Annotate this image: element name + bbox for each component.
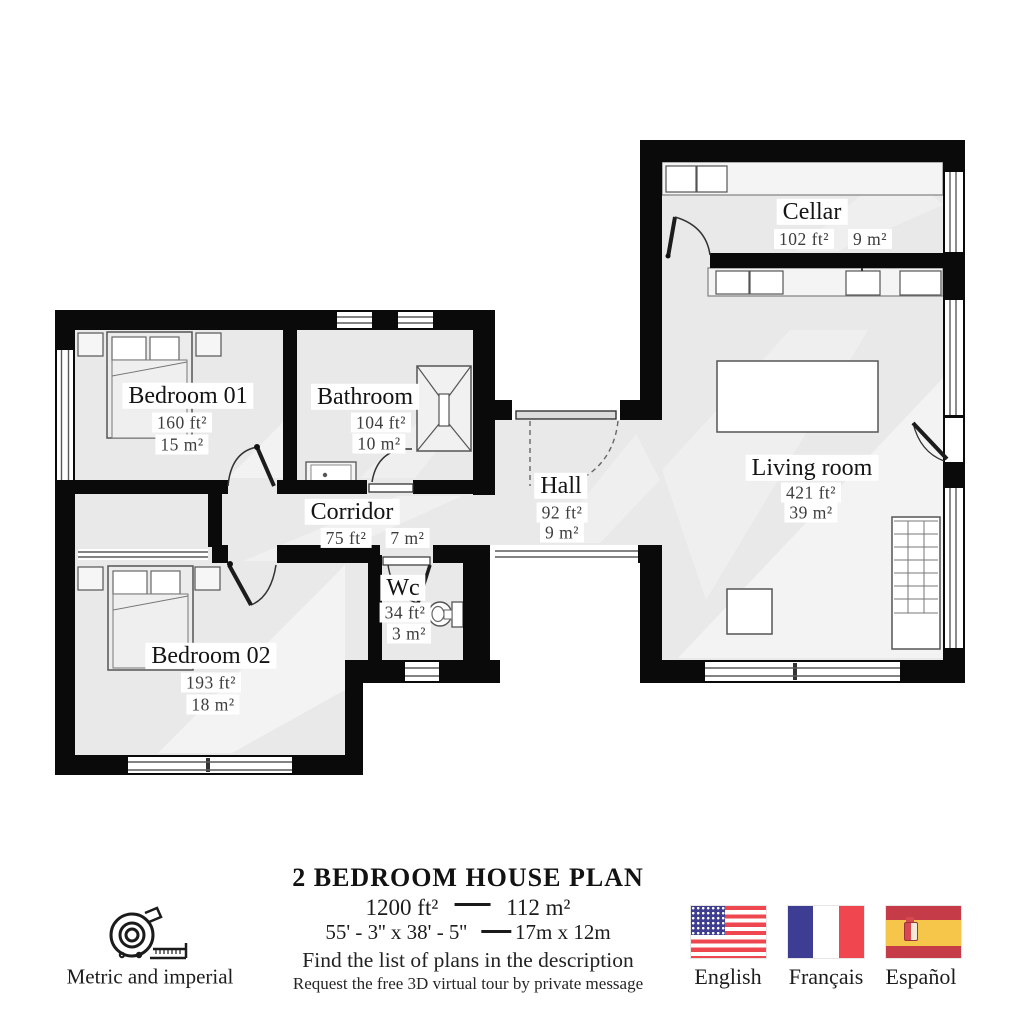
room-area-m: 9 m² (848, 229, 892, 249)
room-area-living-ft: 421 ft² (781, 483, 841, 504)
room-label-bedroom2: Bedroom 02 (145, 643, 276, 669)
side-table (727, 589, 772, 634)
poster-title: 2 BEDROOM HOUSE PLAN (292, 863, 644, 893)
room-area-ft: 75 ft² (321, 528, 372, 548)
language-label-espanol: Español (886, 964, 957, 990)
room-label-wc: Wc (380, 575, 425, 601)
language-label-english: English (694, 964, 761, 990)
room-name: Living room (746, 455, 879, 481)
room-area-bedroom1-m: 15 m² (155, 435, 208, 456)
room-label-cellar: Cellar (777, 199, 848, 225)
room-area-m: 10 m² (352, 434, 405, 454)
separator-dash (481, 930, 511, 933)
room-label-corridor: Corridor (305, 499, 400, 525)
room-name: Bedroom 01 (122, 383, 253, 409)
room-area-living-m: 39 m² (784, 503, 837, 524)
toilet (429, 602, 464, 627)
floor-plan-poster: Cellar 102 ft² 9 m² Living room 421 ft² … (0, 0, 1024, 1024)
tape-measure-icon (92, 900, 196, 964)
room-area-ft: 92 ft² (537, 503, 588, 523)
total-area-metric: 112 m² (506, 895, 570, 920)
shelf-unit (892, 517, 940, 649)
room-label-hall: Hall (534, 473, 587, 499)
dimensions-line: 55' - 3'' x 38' - 5''17m x 12m (325, 920, 610, 945)
description-note: Find the list of plans in the descriptio… (302, 948, 633, 973)
room-area-m: 15 m² (155, 435, 208, 455)
room-label-living: Living room (746, 455, 879, 481)
language-label-francais: Français (789, 964, 864, 990)
total-area-line: 1200 ft²112 m² (366, 895, 571, 921)
room-area-bedroom1-ft: 160 ft² (152, 413, 212, 434)
virtual-tour-note: Request the free 3D virtual tour by priv… (293, 974, 643, 994)
room-area-wc-m: 3 m² (387, 624, 431, 645)
room-area-cellar: 102 ft² 9 m² (774, 229, 892, 249)
room-area-ft: 193 ft² (181, 673, 241, 693)
us-flag-icon (690, 905, 767, 959)
us-flag-canton (691, 906, 725, 935)
room-area-m: 7 m² (385, 528, 429, 548)
room-area-m: 9 m² (540, 523, 584, 543)
room-area-bedroom2-ft: 193 ft² (181, 673, 241, 694)
units-label: Metric and imperial (67, 965, 234, 990)
room-area-hall-ft: 92 ft² (537, 503, 588, 524)
room-area-bathroom-ft: 104 ft² (351, 413, 411, 434)
room-name: Hall (534, 473, 587, 499)
room-area-ft: 104 ft² (351, 413, 411, 433)
room-area-ft: 102 ft² (774, 229, 834, 249)
room-area-ft: 421 ft² (781, 483, 841, 503)
room-area-ft: 160 ft² (152, 413, 212, 433)
dimensions-metric: 17m x 12m (515, 920, 611, 944)
total-area-imperial: 1200 ft² (366, 895, 439, 920)
room-area-hall-m: 9 m² (540, 523, 584, 544)
separator-dash (454, 903, 490, 906)
kitchen-cellar-counter (662, 162, 943, 195)
dining-table (717, 361, 878, 432)
room-area-corridor: 75 ft² 7 m² (321, 528, 430, 548)
room-name: Bathroom (311, 384, 419, 410)
room-area-wc-ft: 34 ft² (380, 603, 431, 624)
room-area-m: 3 m² (387, 624, 431, 644)
dimensions-imperial: 55' - 3'' x 38' - 5'' (325, 920, 467, 944)
room-area-ft: 34 ft² (380, 603, 431, 623)
spain-flag-icon (885, 905, 962, 959)
room-name: Bedroom 02 (145, 643, 276, 669)
room-name: Cellar (777, 199, 848, 225)
room-area-m: 39 m² (784, 503, 837, 523)
room-area-m: 18 m² (186, 695, 239, 715)
france-flag-icon (787, 905, 865, 959)
room-name: Corridor (305, 499, 400, 525)
spain-crest (904, 922, 918, 941)
room-name: Wc (380, 575, 425, 601)
room-label-bathroom: Bathroom (311, 384, 419, 410)
room-area-bedroom2-m: 18 m² (186, 695, 239, 716)
room-label-bedroom1: Bedroom 01 (122, 383, 253, 409)
room-area-bathroom-m: 10 m² (352, 434, 405, 455)
